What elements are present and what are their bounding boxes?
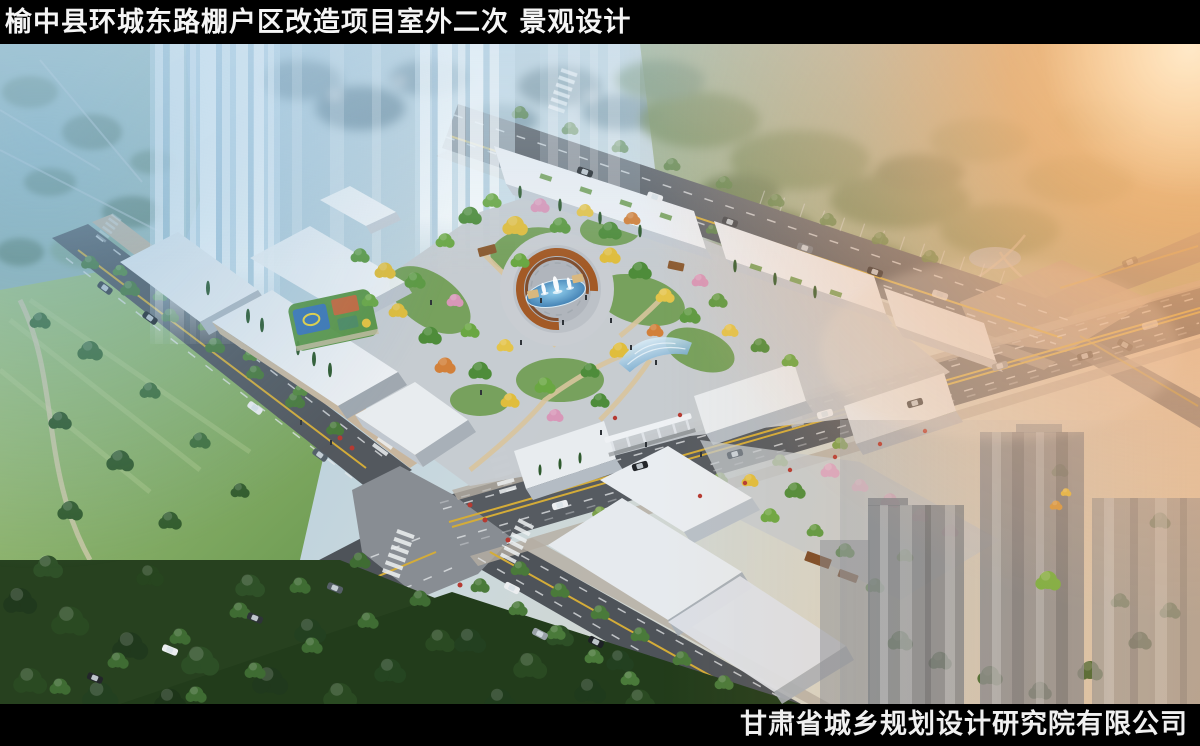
project-title: 榆中县环城东路棚户区改造项目室外二次 景观设计	[0, 7, 631, 38]
credit-bar: 甘肃省城乡规划设计研究院有限公司	[0, 704, 1200, 746]
presentation-board: 榆中县环城东路棚户区改造项目室外二次 景观设计	[0, 0, 1200, 746]
aerial-rendering	[0, 44, 1200, 704]
atmosphere	[0, 44, 1200, 704]
title-bar: 榆中县环城东路棚户区改造项目室外二次 景观设计	[0, 0, 1200, 44]
design-institute-credit: 甘肃省城乡规划设计研究院有限公司	[740, 709, 1200, 740]
